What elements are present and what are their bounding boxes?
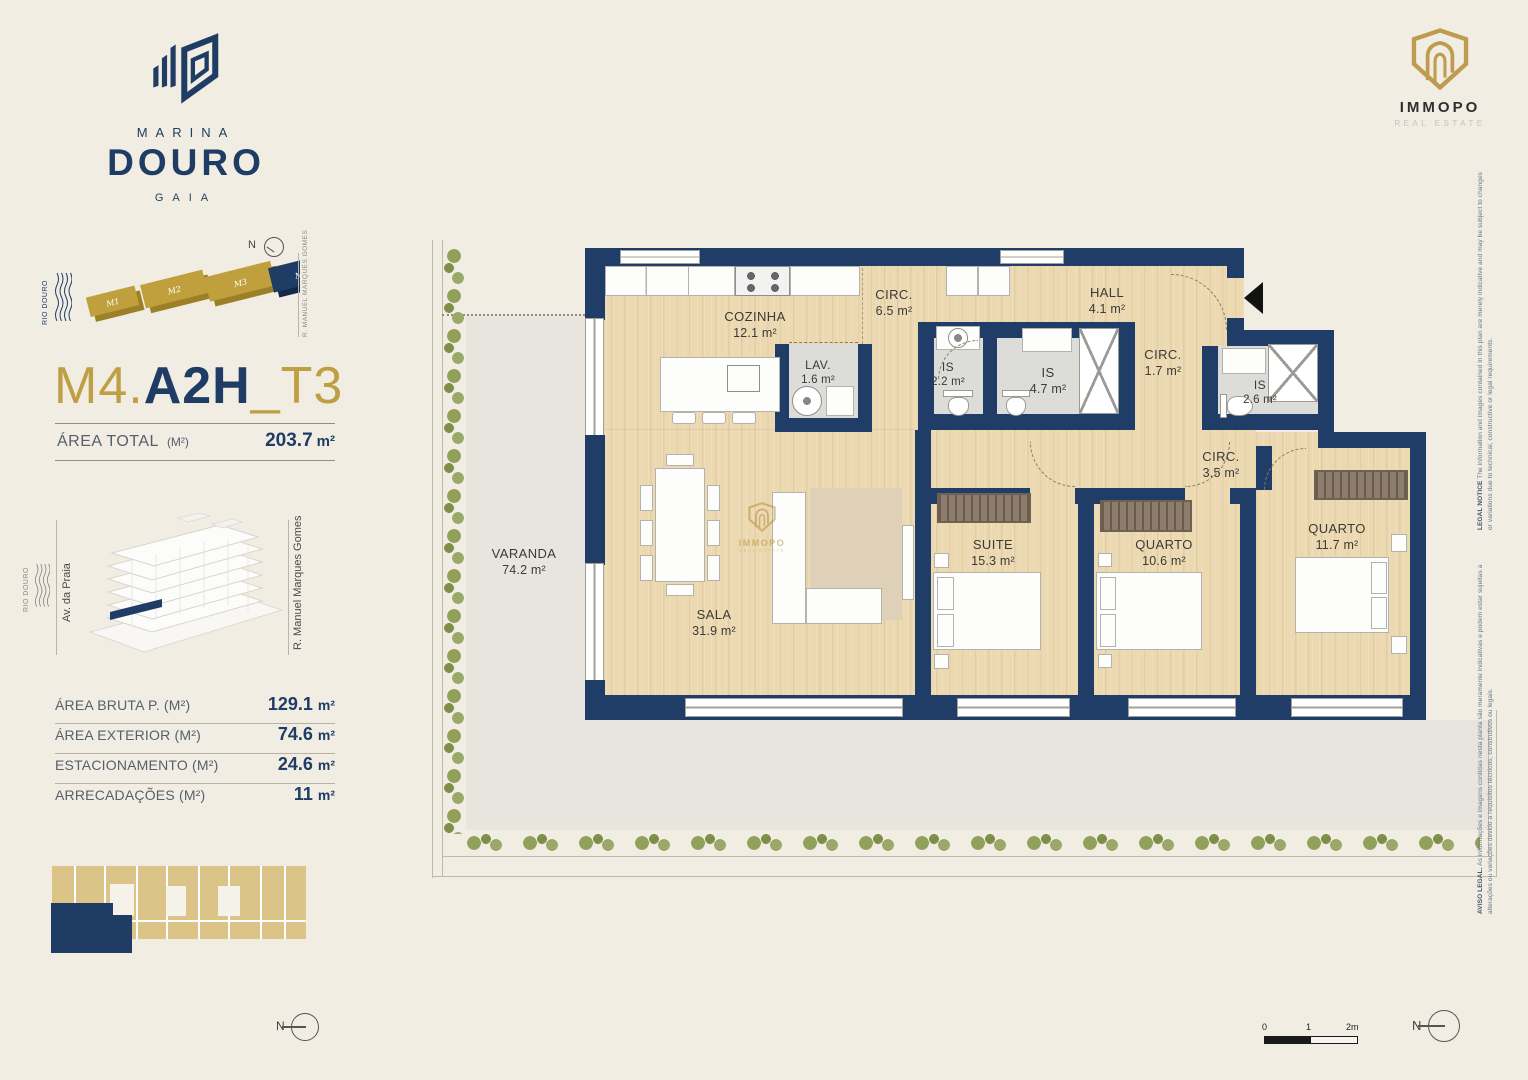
area-total-unit: m² [317,433,335,450]
chair [707,520,720,546]
compass-southwest: N [276,1012,326,1042]
unit-type: _T3 [251,357,344,415]
street-label-top: R. MANUEL MARQUES GOMES [302,255,309,337]
site-core [110,884,134,916]
room-label-hall: HALL4.1 m² [1089,284,1126,318]
wall [1240,504,1256,720]
divider [55,423,335,424]
hedge-left [443,248,465,834]
lav-sliding-door [789,342,858,343]
street-line [288,520,289,655]
wall [915,430,931,720]
pillow [1371,597,1387,629]
immopo-name: IMMOPO [1388,99,1492,116]
wall [1410,446,1426,720]
area-total-unit-note: (M²) [167,435,265,449]
brand-name-main: DOURO [56,142,316,184]
kitchen-window [620,250,700,264]
nightstand [1391,636,1407,654]
bedroom-window [1128,698,1236,717]
divider [55,460,335,461]
room-label-is22: IS2.2 m² [931,360,965,390]
immopo-shield-icon [1409,28,1471,90]
terrace-bottom [466,720,1488,830]
sink-icon [727,365,760,392]
chair [640,485,653,511]
area-total-row: ÁREA TOTAL (M²) 203.7 m² [57,430,335,452]
compass-southeast: N [1412,1008,1468,1044]
river-waves-icon [34,562,50,612]
room-label-quarto117: QUARTO11.7 m² [1308,520,1366,554]
brand-name-sub: GAIA [56,192,316,204]
toilet-icon [943,390,973,397]
pillow [1100,577,1116,610]
kitchen-counter [605,266,735,296]
kitchen-open-boundary [862,268,863,344]
scale-bar-track [1264,1036,1358,1044]
floor-plan: IMMOPO REAL ESTATE VARANDA74.2 m² COZINH… [430,240,1500,882]
wall [585,435,605,565]
room-label-quarto106: QUARTO10.6 m² [1135,536,1193,570]
suite-window [957,698,1070,717]
room-label-lav: LAV.1.6 m² [801,358,835,388]
nightstand [1098,654,1112,668]
tv-cabinet [902,525,914,600]
wardrobe-icon [1100,500,1192,532]
floorplan-sheet: MARINA DOURO GAIA RIO DOURO M1 M2 [0,0,1528,1080]
balcony-window [585,318,604,437]
kitchen-counter [790,266,860,296]
building-illustration: RIO DOURO Av. da Praia [20,492,340,687]
brand-name-top: MARINA [56,125,316,140]
wall [1227,248,1244,278]
sofa-chaise [806,588,882,624]
window [1000,250,1064,264]
site-unit-highlight [51,903,113,953]
wall [585,248,605,320]
toilet-bowl [1006,397,1026,416]
chair [640,520,653,546]
room-label-sala: SALA31.9 m² [692,606,736,640]
site-core [166,886,186,916]
pillow [1371,562,1387,594]
dining-table [655,468,705,582]
hedge-bottom [464,832,1480,854]
bedroom-window [1291,698,1403,717]
balcony-window [585,563,604,682]
pillow [1100,614,1116,647]
pillow [937,614,954,647]
building-3d [82,500,288,678]
washbasin-icon [1022,328,1072,352]
river-waves-icon [54,271,72,327]
table-row: ARRECADAÇÕES (M²)11m² [55,784,335,813]
nightstand [934,553,949,568]
area-total-label: ÁREA TOTAL [57,433,159,451]
kitchen-island [660,357,780,412]
toilet-icon [1002,390,1030,397]
masterplan-compass: N [248,235,288,261]
chair [666,584,694,596]
chair [640,555,653,581]
lot-line [1496,710,1497,877]
living-sliding-door [685,698,903,717]
area-total-value: 203.7 [265,430,313,452]
site-unit-highlight [106,915,132,953]
immopo-logo: IMMOPO REAL ESTATE [1388,28,1492,128]
lot-line [432,876,1497,877]
shower-icon [1079,328,1119,414]
wardrobe-icon [1314,470,1408,500]
river-label: RIO DOURO [42,273,49,325]
table-row: ÁREA EXTERIOR (M²)74.6m² [55,724,335,753]
wall [1230,488,1256,504]
river-label-building: RIO DOURO [23,564,30,612]
room-label-circ17: CIRC.1.7 m² [1144,346,1181,380]
room-label-suite: SUITE15.3 m² [971,536,1015,570]
legal-en: LEGAL NOTICE The information and images … [1476,166,1496,530]
nightstand [1098,553,1112,567]
wall [1078,504,1094,720]
street-line [56,520,57,655]
pillow [937,577,954,610]
table-row: ESTACIONAMENTO (M²)24.6m² [55,754,335,783]
entry-arrow-icon [1244,282,1263,314]
room-label-cozinha: COZINHA12.1 m² [724,308,785,342]
masterplan-diagram: RIO DOURO M1 M2 M3 [40,233,336,343]
immopo-tagline: REAL ESTATE [1388,119,1492,128]
immopo-watermark: IMMOPO REAL ESTATE [733,502,791,553]
table-row: ÁREA BRUTA P. (M²)129.1m² [55,694,335,723]
nightstand [934,654,949,669]
room-label-circ35: CIRC.3.5 m² [1202,448,1239,482]
nightstand [1391,534,1407,552]
wall [983,338,997,414]
stool [672,412,696,424]
room-label-varanda: VARANDA74.2 m² [492,545,557,579]
brand-block: MARINA DOURO GAIA [56,30,316,204]
legal-pt: AVISO LEGAL. As informações e imagens co… [1476,534,1496,914]
street-right-label: R. Manuel Marques Gomes [292,528,304,650]
wall [775,418,872,432]
street-line [298,253,299,337]
washbasin-icon [1222,348,1266,374]
wardrobe-icon [937,493,1031,523]
unit-title: M4.A2H_T3 [54,356,344,416]
unit-block: M4. [54,357,144,415]
kitchen-cabinet [946,266,1010,296]
wall [1075,488,1094,504]
room-label-circ65: CIRC.6.5 m² [875,286,912,320]
lot-line [432,240,433,878]
stove-icon [735,266,790,296]
wall [918,414,1135,430]
lot-line [442,856,1488,857]
site-plan [40,858,330,968]
toilet-bowl [948,397,969,416]
room-label-is47: IS4.7 m² [1030,364,1067,398]
immopo-shield-icon [747,502,777,532]
area-table: ÁREA BRUTA P. (M²)129.1m² ÁREA EXTERIOR … [55,694,335,813]
stool [732,412,756,424]
chair [707,555,720,581]
marina-douro-logo-icon [143,30,229,114]
lav-counter [826,386,854,416]
chair [666,454,694,466]
stool [702,412,726,424]
chair [707,485,720,511]
street-left-label: Av. da Praia [61,558,73,622]
washer-icon [792,386,822,416]
toilet-icon [1220,394,1227,418]
unit-code: A2H [144,357,251,415]
site-core [218,886,240,916]
room-label-is26: IS2.6 m² [1243,378,1277,408]
legal-notice: AVISO LEGAL. As informações e imagens co… [1476,166,1496,914]
